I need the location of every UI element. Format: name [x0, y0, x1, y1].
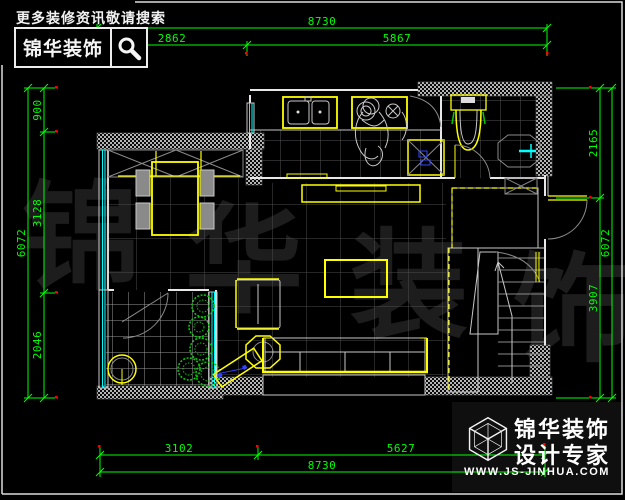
footer-brand: 锦华装饰 设计专家 WWW.JS-JINHUA.COM: [452, 402, 623, 492]
search-logo-box: 锦华装饰: [14, 27, 148, 68]
dim-bottom-seg1: 3102: [165, 442, 194, 455]
dim-bottom-total: 8730: [308, 459, 337, 472]
dining-cabinet: [108, 150, 243, 177]
dim-left-seg3: 2046: [31, 331, 44, 360]
footer-url: WWW.JS-JINHUA.COM: [456, 466, 618, 478]
search-tagline: 更多装修资讯敬请搜索: [16, 8, 166, 28]
dim-bottom-seg2: 5627: [387, 442, 416, 455]
kitchen-door-arc: [410, 96, 441, 127]
shoe-cabinet: [505, 178, 537, 194]
cube-logo-icon: [466, 414, 510, 464]
dim-right-seg1: 2165: [587, 129, 600, 158]
dim-top-seg1: 2862: [158, 32, 187, 45]
dim-left-seg2: 3128: [31, 199, 44, 228]
window-kitchen-west: [247, 103, 254, 133]
masonry-shaft: [448, 188, 538, 392]
entry-door: [548, 196, 587, 239]
dim-left-seg1: 900: [31, 99, 44, 120]
dim-left-total: 6072: [15, 229, 28, 258]
search-icon: [116, 35, 142, 61]
cad-floorplan-canvas: 锦 华 装 饰: [0, 0, 625, 500]
dim-right-seg2: 3907: [587, 284, 600, 313]
brand-name: 锦华装饰: [16, 29, 110, 66]
dim-right-total: 6072: [599, 229, 612, 258]
kitchen-sink: [283, 97, 337, 128]
dim-top-seg2: 5867: [383, 32, 412, 45]
magnifier-cell: [110, 29, 146, 66]
dim-top-total: 8730: [308, 15, 337, 28]
